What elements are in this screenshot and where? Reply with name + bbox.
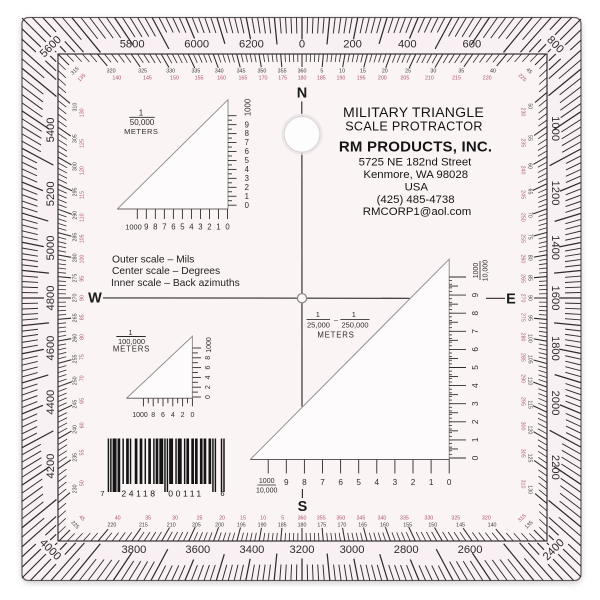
svg-text:40: 40: [115, 516, 121, 522]
svg-text:8: 8: [151, 412, 155, 419]
svg-text:4200: 4200: [45, 454, 57, 479]
svg-text:8: 8: [471, 310, 480, 315]
svg-text:N: N: [297, 86, 307, 102]
svg-text:6: 6: [338, 478, 343, 487]
svg-text:2000: 2000: [549, 391, 561, 416]
svg-text:320: 320: [482, 516, 491, 522]
svg-text:METERS: METERS: [317, 331, 354, 340]
svg-text:270: 270: [520, 294, 526, 303]
svg-text:1800: 1800: [549, 336, 561, 361]
svg-text:185: 185: [317, 75, 326, 81]
svg-text:330: 330: [166, 69, 175, 75]
svg-text:5800: 5800: [120, 38, 145, 50]
svg-text:55: 55: [79, 450, 85, 456]
svg-text:1000: 1000: [549, 116, 561, 141]
svg-text:275: 275: [520, 313, 526, 322]
svg-text:6: 6: [245, 147, 249, 156]
svg-text:200: 200: [378, 75, 387, 81]
svg-text:4600: 4600: [45, 336, 57, 361]
svg-text:3: 3: [393, 478, 398, 487]
svg-text:5725 NE 182nd Street: 5725 NE 182nd Street: [359, 156, 473, 168]
svg-text:2200: 2200: [549, 455, 561, 480]
svg-text:140: 140: [488, 523, 497, 529]
svg-text:5200: 5200: [45, 181, 57, 206]
svg-text:360: 360: [298, 516, 307, 522]
svg-text:1600: 1600: [549, 286, 561, 311]
svg-text:255: 255: [520, 234, 526, 243]
svg-text:110: 110: [79, 213, 85, 221]
svg-text:300: 300: [520, 422, 526, 431]
svg-text:40: 40: [490, 69, 496, 75]
svg-text:1000: 1000: [473, 263, 480, 279]
svg-text:0: 0: [205, 395, 212, 399]
svg-text:5: 5: [180, 223, 185, 232]
svg-text:310: 310: [520, 480, 526, 489]
svg-text:235: 235: [73, 453, 79, 462]
svg-text:175: 175: [317, 523, 326, 529]
svg-text:4400: 4400: [45, 390, 57, 415]
svg-text:400: 400: [398, 38, 417, 50]
svg-text:215: 215: [452, 75, 461, 81]
svg-text:1: 1: [352, 310, 356, 319]
svg-text:Kenmore, WA 98028: Kenmore, WA 98028: [363, 169, 468, 181]
svg-text:355: 355: [317, 516, 326, 522]
svg-text:180: 180: [298, 523, 307, 529]
svg-text:85: 85: [527, 275, 533, 281]
svg-text:E: E: [506, 291, 516, 307]
svg-text:200: 200: [215, 523, 224, 529]
svg-text:600: 600: [463, 38, 482, 50]
svg-text:125: 125: [79, 139, 85, 148]
svg-text:345: 345: [237, 69, 246, 75]
svg-text:305: 305: [73, 134, 79, 143]
svg-text:Center scale – Degrees: Center scale – Degrees: [112, 266, 220, 277]
svg-text:155: 155: [195, 75, 204, 81]
svg-text:280: 280: [73, 253, 79, 262]
svg-text:55: 55: [527, 135, 533, 141]
svg-text:6: 6: [171, 223, 175, 232]
svg-text:7: 7: [471, 329, 480, 334]
svg-text:240: 240: [520, 166, 526, 175]
svg-text:(425) 485-4738: (425) 485-4738: [377, 194, 455, 206]
svg-text:75: 75: [527, 234, 533, 240]
svg-text:4: 4: [189, 223, 194, 232]
svg-text:9: 9: [471, 292, 480, 297]
svg-text:275: 275: [73, 274, 79, 283]
svg-text:1: 1: [471, 437, 480, 442]
svg-text:7: 7: [100, 489, 104, 498]
svg-text:9: 9: [284, 478, 289, 487]
svg-text:4: 4: [171, 412, 175, 419]
svg-text:2: 2: [411, 478, 416, 487]
svg-text:1000: 1000: [206, 337, 213, 353]
svg-text:10,000: 10,000: [256, 488, 278, 495]
svg-text:2800: 2800: [394, 544, 419, 556]
svg-text:290: 290: [520, 374, 526, 383]
svg-text:METERS: METERS: [113, 344, 150, 353]
svg-text:65: 65: [79, 398, 85, 404]
svg-text:USA: USA: [405, 181, 429, 193]
svg-text:35: 35: [458, 69, 464, 75]
svg-text:260: 260: [73, 334, 79, 343]
svg-text:285: 285: [73, 233, 79, 242]
svg-text:165: 165: [358, 523, 367, 529]
svg-text:330: 330: [424, 516, 433, 522]
svg-text:220: 220: [483, 75, 492, 81]
svg-text:305: 305: [520, 449, 526, 458]
svg-text:325: 325: [451, 516, 460, 522]
svg-text:205: 205: [192, 523, 201, 529]
svg-text:10: 10: [339, 69, 345, 75]
svg-text:140: 140: [112, 75, 121, 81]
svg-text:1000: 1000: [125, 223, 141, 232]
svg-text:MILITARY TRIANGLE: MILITARY TRIANGLE: [343, 104, 484, 120]
svg-text:280: 280: [520, 333, 526, 342]
svg-text:180: 180: [298, 75, 307, 81]
svg-text:1: 1: [316, 310, 320, 319]
svg-text:5: 5: [281, 516, 284, 522]
svg-text:0: 0: [225, 223, 230, 232]
svg-text:185: 185: [278, 523, 287, 529]
svg-text:115: 115: [79, 191, 85, 199]
svg-text:5: 5: [471, 365, 480, 370]
svg-text:4: 4: [205, 375, 212, 379]
svg-text:Inner scale – Back azimuths: Inner scale – Back azimuths: [111, 278, 240, 289]
svg-text:5000: 5000: [45, 236, 57, 261]
svg-text:350: 350: [257, 69, 266, 75]
svg-text:25: 25: [405, 69, 411, 75]
svg-text:6000: 6000: [184, 38, 209, 50]
svg-text:2: 2: [207, 223, 211, 232]
svg-text:130: 130: [79, 108, 85, 117]
svg-text:0: 0: [447, 478, 452, 487]
svg-text:350: 350: [336, 516, 345, 522]
svg-text:4: 4: [471, 383, 480, 388]
svg-text:150: 150: [170, 75, 179, 81]
svg-text:10,000: 10,000: [483, 260, 490, 282]
svg-text:4: 4: [245, 165, 250, 174]
svg-text:RMCORP1@aol.com: RMCORP1@aol.com: [363, 206, 471, 218]
svg-text:1200: 1200: [549, 181, 561, 206]
svg-text:265: 265: [520, 274, 526, 283]
svg-text:24118: 24118: [121, 488, 157, 498]
svg-text:245: 245: [73, 400, 79, 409]
svg-text:160: 160: [217, 75, 226, 81]
svg-text:85: 85: [79, 314, 85, 320]
svg-text:50,000: 50,000: [130, 118, 155, 127]
svg-text:2600: 2600: [458, 544, 483, 556]
svg-text:2: 2: [471, 419, 480, 424]
svg-text:235: 235: [520, 138, 526, 147]
svg-text:3: 3: [471, 401, 480, 406]
svg-text:8: 8: [302, 478, 307, 487]
svg-text:360: 360: [298, 69, 307, 75]
svg-text:6: 6: [471, 347, 480, 352]
svg-text:90: 90: [527, 295, 533, 301]
svg-text:1: 1: [216, 223, 220, 232]
svg-text:6200: 6200: [239, 38, 264, 50]
svg-text:7: 7: [245, 138, 249, 147]
svg-text:5: 5: [245, 156, 250, 165]
svg-text:10: 10: [260, 516, 266, 522]
svg-text:SCALE PROTRACTOR: SCALE PROTRACTOR: [345, 119, 483, 133]
svg-text:3800: 3800: [122, 544, 147, 556]
svg-text:20: 20: [219, 516, 225, 522]
svg-text:80: 80: [527, 255, 533, 261]
svg-text:115: 115: [527, 400, 533, 408]
svg-text:7: 7: [320, 478, 325, 487]
svg-text:295: 295: [73, 187, 79, 196]
svg-text:160: 160: [380, 523, 389, 529]
svg-text:6: 6: [161, 412, 165, 419]
svg-text:1400: 1400: [549, 235, 561, 260]
svg-text:60: 60: [527, 163, 533, 169]
svg-text:1: 1: [429, 478, 434, 487]
svg-text:0: 0: [471, 455, 480, 460]
svg-text:255: 255: [73, 354, 79, 363]
svg-text:170: 170: [259, 75, 268, 81]
svg-text:120: 120: [527, 425, 533, 434]
svg-text:210: 210: [167, 523, 176, 529]
svg-text:W: W: [88, 291, 102, 307]
svg-text:2: 2: [181, 412, 185, 419]
svg-text:15: 15: [240, 516, 246, 522]
svg-text:30: 30: [172, 516, 178, 522]
svg-text:4: 4: [375, 478, 380, 487]
svg-text:25: 25: [197, 516, 203, 522]
svg-text:3000: 3000: [340, 544, 365, 556]
svg-text:1000: 1000: [132, 412, 148, 419]
svg-text:270: 270: [73, 294, 79, 303]
svg-text:90: 90: [79, 295, 85, 301]
svg-text:285: 285: [520, 353, 526, 362]
svg-text:5400: 5400: [45, 118, 57, 143]
svg-text:60: 60: [79, 422, 85, 428]
svg-text:8: 8: [205, 356, 212, 360]
svg-text:230: 230: [520, 108, 526, 117]
svg-text:1000: 1000: [244, 98, 253, 116]
svg-text:50: 50: [527, 103, 533, 109]
svg-text:250: 250: [73, 376, 79, 385]
svg-text:6: 6: [205, 366, 212, 370]
svg-text:250,000: 250,000: [341, 321, 368, 330]
svg-text:8: 8: [153, 223, 157, 232]
svg-text:320: 320: [107, 69, 116, 75]
svg-text:3200: 3200: [290, 544, 315, 556]
svg-text:310: 310: [73, 103, 79, 112]
svg-text:195: 195: [357, 75, 366, 81]
svg-text:110: 110: [527, 377, 533, 385]
svg-text:125: 125: [527, 454, 533, 463]
svg-text:105: 105: [79, 234, 85, 243]
svg-text:20: 20: [382, 69, 388, 75]
svg-text:9: 9: [245, 120, 249, 129]
svg-text:205: 205: [400, 75, 409, 81]
svg-text:95: 95: [79, 276, 85, 282]
svg-text:215: 215: [139, 523, 148, 529]
svg-text:80: 80: [79, 334, 85, 340]
svg-text:100: 100: [527, 334, 533, 343]
svg-text:325: 325: [138, 69, 147, 75]
svg-text:9: 9: [144, 223, 148, 232]
svg-text:3400: 3400: [240, 544, 265, 556]
svg-text:340: 340: [215, 69, 224, 75]
svg-text:260: 260: [520, 254, 526, 263]
svg-text:S: S: [298, 499, 308, 515]
svg-text:190: 190: [336, 75, 345, 81]
svg-text:00111: 00111: [168, 488, 204, 498]
svg-text:3600: 3600: [185, 544, 210, 556]
svg-text:65: 65: [527, 188, 533, 194]
svg-text:70: 70: [79, 375, 85, 381]
svg-text:155: 155: [403, 523, 412, 529]
svg-text:35: 35: [145, 516, 151, 522]
svg-text:335: 335: [400, 516, 409, 522]
svg-text:150: 150: [428, 523, 437, 529]
svg-text:340: 340: [378, 516, 387, 522]
svg-text:8: 8: [245, 129, 249, 138]
svg-text:1000: 1000: [259, 478, 275, 485]
svg-text:4800: 4800: [45, 286, 57, 311]
svg-text:105: 105: [527, 355, 533, 364]
svg-text:5: 5: [356, 478, 361, 487]
svg-text:230: 230: [73, 484, 79, 493]
svg-text:1: 1: [245, 192, 249, 201]
svg-text:2: 2: [205, 385, 212, 389]
svg-text:145: 145: [456, 523, 465, 529]
svg-text:195: 195: [237, 523, 246, 529]
svg-text:250: 250: [520, 213, 526, 222]
svg-text:25,000: 25,000: [307, 321, 330, 330]
svg-text:30: 30: [430, 69, 436, 75]
svg-text:335: 335: [191, 69, 200, 75]
svg-text:95: 95: [527, 315, 533, 321]
svg-text:240: 240: [73, 425, 79, 434]
svg-text:210: 210: [425, 75, 434, 81]
svg-text:145: 145: [143, 75, 152, 81]
svg-text:Outer scale – Mils: Outer scale – Mils: [112, 254, 194, 265]
svg-text:130: 130: [527, 485, 533, 494]
svg-text:15: 15: [360, 69, 366, 75]
svg-text:0: 0: [190, 412, 194, 419]
svg-text:290: 290: [73, 211, 79, 220]
svg-text:1: 1: [139, 109, 144, 118]
svg-text:0: 0: [245, 201, 250, 210]
svg-text:RM PRODUCTS, INC.: RM PRODUCTS, INC.: [339, 138, 492, 155]
svg-text:7: 7: [162, 223, 166, 232]
svg-text:0: 0: [299, 38, 305, 50]
svg-text:100: 100: [79, 255, 85, 264]
svg-text:6: 6: [220, 489, 224, 498]
svg-text:300: 300: [73, 162, 79, 171]
svg-text:3: 3: [198, 223, 202, 232]
svg-text:245: 245: [520, 190, 526, 199]
svg-text:120: 120: [79, 166, 85, 175]
svg-text:2: 2: [245, 183, 249, 192]
svg-text:METERS: METERS: [124, 127, 158, 136]
svg-text:355: 355: [278, 69, 287, 75]
svg-text:50: 50: [79, 480, 85, 486]
svg-text:170: 170: [338, 523, 347, 529]
svg-text:265: 265: [73, 313, 79, 322]
svg-text:75: 75: [79, 354, 85, 360]
svg-text:175: 175: [278, 75, 287, 81]
svg-text:165: 165: [238, 75, 247, 81]
svg-text:220: 220: [108, 523, 117, 529]
svg-text:1: 1: [128, 328, 132, 337]
svg-text:295: 295: [520, 397, 526, 406]
svg-text:190: 190: [258, 523, 267, 529]
svg-text:70: 70: [527, 212, 533, 218]
svg-text:345: 345: [356, 516, 365, 522]
svg-text:3: 3: [245, 174, 249, 183]
svg-text:5: 5: [320, 69, 323, 75]
svg-text:200: 200: [343, 38, 362, 50]
